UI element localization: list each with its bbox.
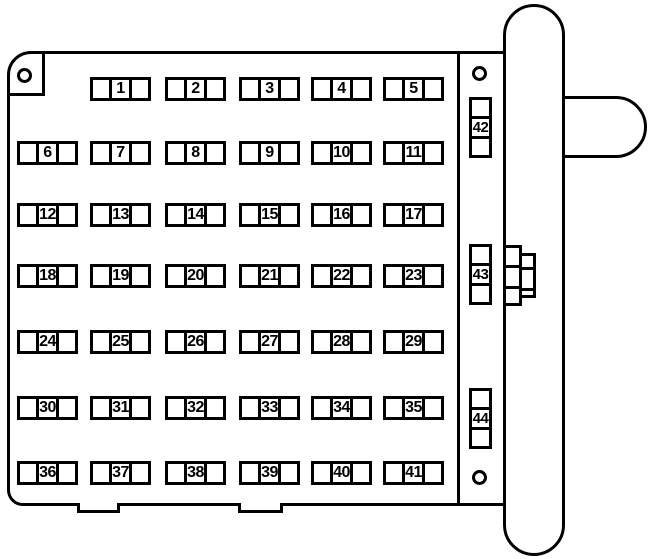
- fuse-number: 14: [184, 206, 206, 224]
- fuse-number: 33: [258, 399, 280, 417]
- fuse-number: 43: [472, 263, 489, 285]
- fuse-terminal-right: [132, 80, 148, 98]
- fuse-number: 2: [184, 80, 206, 98]
- fuse-43: 43: [469, 244, 492, 305]
- fuse-number: 36: [36, 464, 58, 482]
- fuse-number: 3: [258, 80, 280, 98]
- fuse-39: 39: [239, 461, 300, 485]
- fuse-terminal-right: [207, 206, 223, 224]
- fuse-terminal-left: [386, 144, 402, 162]
- fuse-number: 11: [402, 144, 424, 162]
- screw-hole-icon-strip-top: [472, 66, 487, 81]
- screw-hole-icon-top-left: [17, 68, 32, 83]
- fuse-29: 29: [383, 330, 444, 354]
- fuse-10: 10: [311, 141, 372, 165]
- screw-hole-icon-strip-bottom: [472, 470, 487, 485]
- fuse-terminal-left: [242, 80, 258, 98]
- fuse-terminal-right: [425, 144, 441, 162]
- fuse-terminal-left: [314, 333, 330, 351]
- fuse-number: 18: [36, 267, 58, 285]
- fuse-terminal-right: [425, 206, 441, 224]
- fuse-terminal-right: [207, 464, 223, 482]
- relay-connector-divider: [506, 286, 519, 289]
- fuse-terminal-left: [93, 333, 109, 351]
- fuse-terminal-left: [314, 399, 330, 417]
- fuse-40: 40: [311, 461, 372, 485]
- fuse-number: 35: [402, 399, 424, 417]
- fuse-terminal-right: [59, 399, 75, 417]
- fuse-7: 7: [90, 141, 151, 165]
- fuse-terminal-right: [281, 267, 297, 285]
- fuse-terminal-left: [386, 333, 402, 351]
- fuse-number: 42: [472, 116, 489, 138]
- fuse-number: 27: [258, 333, 280, 351]
- fuse-number: 29: [402, 333, 424, 351]
- fuse-terminal-left: [93, 144, 109, 162]
- fuse-9: 9: [239, 141, 300, 165]
- fuse-terminal-right: [353, 267, 369, 285]
- fuse-terminal-left: [93, 399, 109, 417]
- fuse-terminal-right: [425, 399, 441, 417]
- fuse-2: 2: [165, 77, 226, 101]
- fuse-terminal-left: [93, 267, 109, 285]
- fuse-terminal-left: [168, 80, 184, 98]
- relay-connector-divider: [522, 267, 533, 270]
- fuse-11: 11: [383, 141, 444, 165]
- fuse-number: 13: [109, 206, 131, 224]
- fuse-terminal-left: [314, 206, 330, 224]
- fuse-18: 18: [17, 264, 78, 288]
- fuse-number: 4: [330, 80, 352, 98]
- fuse-number: 9: [258, 144, 280, 162]
- mounting-tab-bottom-left: [77, 503, 120, 513]
- fuse-number: 16: [330, 206, 352, 224]
- fuse-14: 14: [165, 203, 226, 227]
- fuse-terminal-left: [20, 333, 36, 351]
- fuse-42: 42: [469, 97, 492, 158]
- fuse-terminal-left: [242, 464, 258, 482]
- fuse-12: 12: [17, 203, 78, 227]
- fuse-terminal-left: [168, 267, 184, 285]
- fuse-terminal-left: [314, 144, 330, 162]
- side-connector-tab: [556, 96, 647, 158]
- fuse-number: 22: [330, 267, 352, 285]
- fuse-terminal-right: [132, 464, 148, 482]
- fuse-terminal-right: [59, 144, 75, 162]
- fuse-number: 17: [402, 206, 424, 224]
- fuse-number: 23: [402, 267, 424, 285]
- fuse-terminal-right: [207, 144, 223, 162]
- fuse-terminal-left: [168, 206, 184, 224]
- fuse-terminal-left: [314, 267, 330, 285]
- fuse-number: 32: [184, 399, 206, 417]
- fuse-number: 15: [258, 206, 280, 224]
- fuse-4: 4: [311, 77, 372, 101]
- fuse-terminal-left: [386, 464, 402, 482]
- fuse-30: 30: [17, 396, 78, 420]
- fuse-terminal-top: [472, 391, 489, 407]
- fuse-26: 26: [165, 330, 226, 354]
- fuse-terminal-top: [472, 247, 489, 263]
- fuse-17: 17: [383, 203, 444, 227]
- fuse-terminal-left: [386, 206, 402, 224]
- fuse-28: 28: [311, 330, 372, 354]
- fuse-terminal-right: [207, 80, 223, 98]
- fuse-number: 37: [109, 464, 131, 482]
- fuse-23: 23: [383, 264, 444, 288]
- fuse-44: 44: [469, 388, 492, 449]
- relay-connector-divider: [522, 288, 533, 291]
- fuse-terminal-left: [242, 399, 258, 417]
- fuse-terminal-left: [93, 80, 109, 98]
- fuse-terminal-left: [386, 80, 402, 98]
- fuse-number: 1: [109, 80, 131, 98]
- fuse-3: 3: [239, 77, 300, 101]
- panel-divider-line: [457, 51, 460, 506]
- fuse-terminal-left: [314, 464, 330, 482]
- fuse-number: 40: [330, 464, 352, 482]
- fuse-terminal-right: [59, 333, 75, 351]
- fuse-terminal-top: [472, 100, 489, 116]
- fuse-number: 44: [472, 407, 489, 429]
- fuse-terminal-right: [281, 333, 297, 351]
- fuse-number: 31: [109, 399, 131, 417]
- fuse-36: 36: [17, 461, 78, 485]
- fuse-terminal-right: [281, 144, 297, 162]
- fuse-33: 33: [239, 396, 300, 420]
- fuse-terminal-right: [281, 206, 297, 224]
- fuse-number: 8: [184, 144, 206, 162]
- fuse-number: 20: [184, 267, 206, 285]
- fuse-terminal-right: [425, 464, 441, 482]
- fuse-number: 7: [109, 144, 131, 162]
- fuse-8: 8: [165, 141, 226, 165]
- fuse-terminal-right: [281, 80, 297, 98]
- fuse-terminal-left: [242, 267, 258, 285]
- fuse-15: 15: [239, 203, 300, 227]
- fuse-terminal-bottom: [472, 139, 489, 155]
- fuse-terminal-right: [207, 399, 223, 417]
- fuse-21: 21: [239, 264, 300, 288]
- fuse-terminal-right: [207, 333, 223, 351]
- fuse-number: 6: [36, 144, 58, 162]
- fuse-terminal-left: [93, 464, 109, 482]
- fuse-41: 41: [383, 461, 444, 485]
- fuse-5: 5: [383, 77, 444, 101]
- fuse-6: 6: [17, 141, 78, 165]
- fuse-35: 35: [383, 396, 444, 420]
- fuse-terminal-right: [353, 464, 369, 482]
- fuse-terminal-left: [242, 333, 258, 351]
- fuse-number: 10: [330, 144, 352, 162]
- fuse-number: 41: [402, 464, 424, 482]
- fuse-terminal-right: [59, 206, 75, 224]
- mounting-tab-bottom-right: [238, 503, 283, 513]
- fuse-13: 13: [90, 203, 151, 227]
- fuse-terminal-bottom: [472, 430, 489, 446]
- fuse-terminal-left: [386, 267, 402, 285]
- fuse-terminal-left: [168, 144, 184, 162]
- fuse-terminal-left: [20, 267, 36, 285]
- fuse-20: 20: [165, 264, 226, 288]
- fuse-terminal-right: [353, 206, 369, 224]
- fuse-38: 38: [165, 461, 226, 485]
- fuse-terminal-right: [353, 144, 369, 162]
- fuse-number: 12: [36, 206, 58, 224]
- fuse-terminal-right: [281, 399, 297, 417]
- fuse-terminal-right: [132, 267, 148, 285]
- fuse-number: 26: [184, 333, 206, 351]
- fuse-terminal-left: [168, 464, 184, 482]
- fuse-24: 24: [17, 330, 78, 354]
- fuse-number: 24: [36, 333, 58, 351]
- fuse-terminal-left: [314, 80, 330, 98]
- fuse-terminal-left: [93, 206, 109, 224]
- fuse-22: 22: [311, 264, 372, 288]
- fuse-terminal-left: [386, 399, 402, 417]
- fuse-19: 19: [90, 264, 151, 288]
- fuse-terminal-right: [132, 144, 148, 162]
- fuse-number: 34: [330, 399, 352, 417]
- fuse-34: 34: [311, 396, 372, 420]
- fuse-27: 27: [239, 330, 300, 354]
- fuse-terminal-right: [425, 80, 441, 98]
- fuse-terminal-left: [20, 206, 36, 224]
- fuse-number: 30: [36, 399, 58, 417]
- fuse-terminal-bottom: [472, 286, 489, 302]
- fuse-37: 37: [90, 461, 151, 485]
- fuse-31: 31: [90, 396, 151, 420]
- fuse-number: 5: [402, 80, 424, 98]
- fuse-terminal-right: [425, 333, 441, 351]
- fuse-terminal-right: [353, 333, 369, 351]
- fuse-terminal-left: [168, 399, 184, 417]
- relay-connector-inner: [519, 253, 536, 298]
- fuse-number: 39: [258, 464, 280, 482]
- fuse-terminal-right: [132, 399, 148, 417]
- fuse-terminal-left: [168, 333, 184, 351]
- fuse-25: 25: [90, 330, 151, 354]
- fuse-terminal-left: [20, 144, 36, 162]
- relay-connector-divider: [506, 265, 519, 268]
- fuse-terminal-right: [59, 267, 75, 285]
- fuse-terminal-right: [132, 206, 148, 224]
- fuse-terminal-right: [281, 464, 297, 482]
- fuse-terminal-right: [425, 267, 441, 285]
- fuse-number: 38: [184, 464, 206, 482]
- fuse-32: 32: [165, 396, 226, 420]
- fuse-number: 19: [109, 267, 131, 285]
- fuse-number: 28: [330, 333, 352, 351]
- fuse-terminal-right: [353, 80, 369, 98]
- fuse-terminal-left: [20, 464, 36, 482]
- fuse-terminal-right: [207, 267, 223, 285]
- fuse-terminal-right: [353, 399, 369, 417]
- fuse-terminal-left: [20, 399, 36, 417]
- fuse-16: 16: [311, 203, 372, 227]
- fuse-number: 21: [258, 267, 280, 285]
- fuse-terminal-left: [242, 206, 258, 224]
- fuse-terminal-right: [59, 464, 75, 482]
- fuse-1: 1: [90, 77, 151, 101]
- fuse-terminal-left: [242, 144, 258, 162]
- fuse-number: 25: [109, 333, 131, 351]
- fuse-terminal-right: [132, 333, 148, 351]
- fuse-box-diagram: 1234567891011121314151617181920212223242…: [0, 0, 650, 559]
